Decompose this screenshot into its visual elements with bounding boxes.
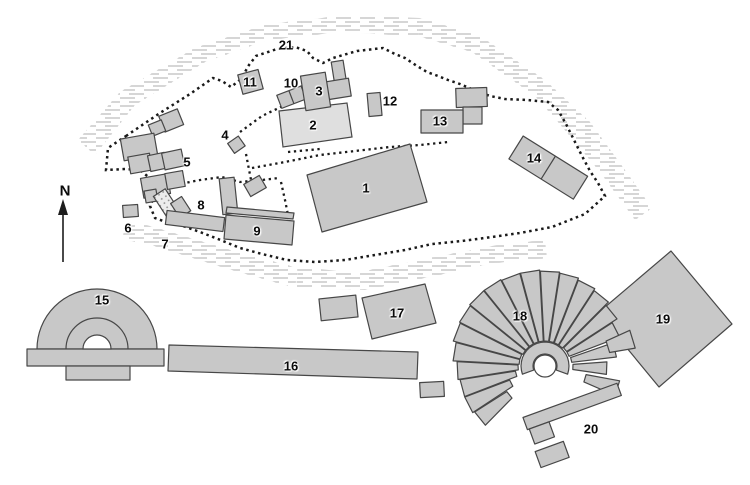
label-3: 3 [315, 84, 322, 99]
structure-13 [421, 87, 487, 133]
label-13: 13 [433, 114, 447, 129]
structure-18-theatre-fan [453, 270, 635, 425]
label-9: 9 [253, 224, 260, 239]
label-2: 2 [309, 118, 316, 133]
label-6: 6 [124, 221, 131, 236]
label-19: 19 [656, 312, 670, 327]
label-17: 17 [390, 306, 404, 321]
label-21: 21 [279, 38, 293, 53]
structure-12 [367, 92, 382, 116]
label-7: 7 [161, 237, 168, 252]
label-8: 8 [197, 198, 204, 213]
label-18: 18 [513, 309, 527, 324]
label-north: N [60, 183, 71, 200]
structure-18-orchestra-center [534, 355, 556, 377]
structure-14 [509, 136, 588, 199]
structure-8-bar [165, 211, 224, 232]
label-10: 10 [284, 76, 298, 91]
structure-5 [120, 109, 185, 203]
label-4: 4 [221, 128, 228, 143]
label-1: 1 [362, 181, 369, 196]
site-plan-svg [0, 0, 750, 485]
structure-17-annex [319, 295, 358, 321]
label-11: 11 [243, 75, 257, 90]
label-5: 5 [183, 155, 190, 170]
structure-20 [523, 383, 627, 467]
structure-6 [123, 204, 139, 217]
label-15: 15 [95, 293, 109, 308]
label-16: 16 [284, 359, 298, 374]
label-14: 14 [527, 151, 541, 166]
structure-8-square [244, 175, 267, 196]
structure-16-small-block [420, 381, 445, 397]
label-20: 20 [584, 422, 598, 437]
north-arrow [58, 199, 68, 262]
label-12: 12 [383, 94, 397, 109]
acropolis-site-plan: 1 2 3 4 5 6 7 8 9 10 11 12 13 14 15 16 1… [0, 0, 750, 485]
structure-4 [228, 136, 246, 153]
